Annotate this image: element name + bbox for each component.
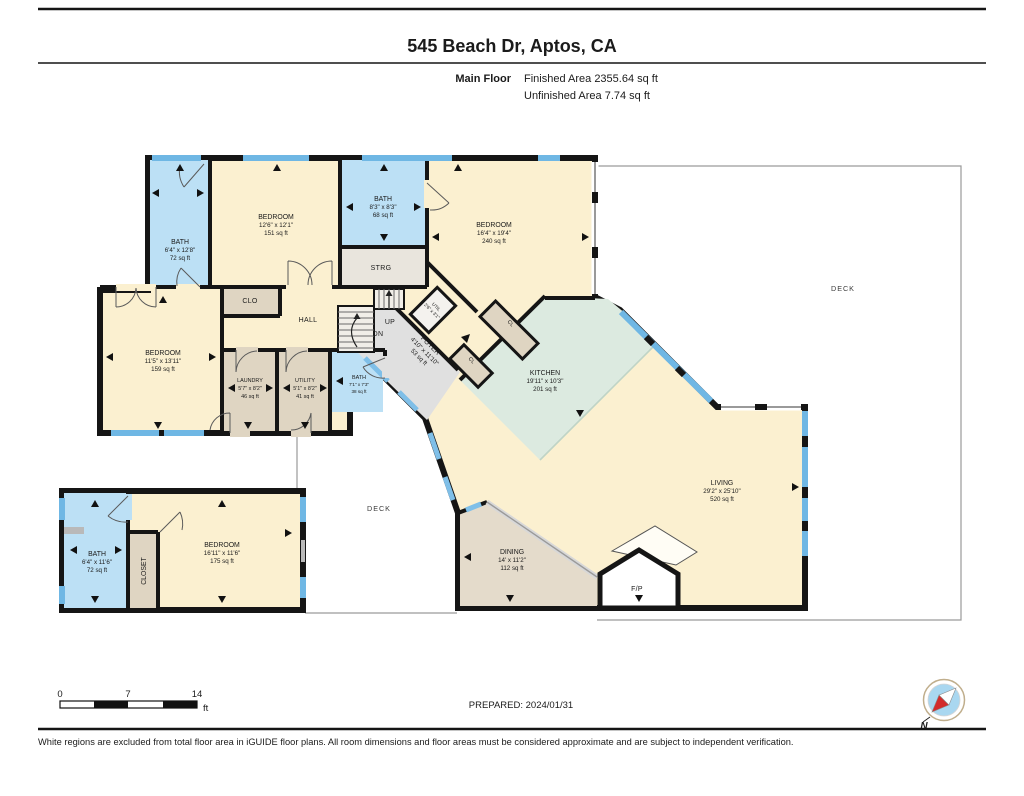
compass-north-label: N (920, 721, 928, 732)
label-living: LIVING (711, 480, 734, 487)
label-bedroom-tl-dims: 12'6" x 12'1" (259, 222, 293, 229)
label-bedroom-tl: BEDROOM (258, 214, 294, 221)
floor-plan-page: 545 Beach Dr, Aptos, CA Main Floor Finis… (0, 0, 1024, 791)
prepared-date: PREPARED: 2024/01/31 (469, 700, 573, 711)
scale-7: 7 (125, 689, 130, 700)
disclaimer-text: White regions are excluded from total fl… (38, 737, 794, 747)
label-kitchen-area: 201 sq ft (533, 386, 557, 393)
scale-unit: ft (203, 703, 209, 714)
label-dining-area: 112 sq ft (500, 565, 524, 572)
label-bath-mid-area: 38 sq ft (351, 389, 367, 394)
label-bedroom-top-dims: 16'4" x 19'4" (477, 230, 511, 237)
label-kitchen: KITCHEN (530, 370, 560, 377)
label-clo: CLO (242, 298, 258, 305)
header: 545 Beach Dr, Aptos, CA Main Floor Finis… (38, 9, 986, 102)
label-bedroom-tl-area: 151 sq ft (264, 230, 288, 237)
label-strg: STRG (371, 265, 392, 272)
label-bedroom-left: BEDROOM (145, 350, 181, 357)
label-utility-dims: 5'1" x 8'2" (293, 386, 317, 392)
footer: White regions are excluded from total fl… (38, 729, 986, 747)
floor-label: Main Floor (455, 73, 511, 85)
label-bedroom-left-dims: 11'5" x 13'11" (145, 358, 181, 365)
label-bath-top-dims: 8'3" x 8'3" (369, 204, 396, 211)
label-utility-area: 41 sq ft (296, 394, 314, 400)
label-bath-ll-dims: 6'4" x 11'6" (82, 559, 112, 566)
floor-plan-canvas: 545 Beach Dr, Aptos, CA Main Floor Finis… (0, 0, 1024, 791)
label-laundry-area: 46 sq ft (241, 394, 259, 400)
label-bath-mid: BATH (352, 375, 366, 381)
label-bedroom-left-area: 159 sq ft (151, 366, 175, 373)
compass-icon: N (920, 680, 964, 733)
label-bedroom-top-area: 240 sq ft (482, 238, 506, 245)
label-hall: HALL (299, 317, 318, 324)
label-bath-ll-area: 72 sq ft (87, 567, 108, 574)
label-bath-tl: BATH (171, 239, 189, 246)
scale-0: 0 (57, 689, 62, 700)
label-bath-tl-area: 72 sq ft (170, 255, 191, 262)
label-bath-top: BATH (374, 196, 392, 203)
page-title: 545 Beach Dr, Aptos, CA (407, 36, 616, 56)
finished-area: Finished Area 2355.64 sq ft (524, 73, 658, 85)
label-bath-tl-dims: 6'4" x 12'8" (165, 247, 196, 254)
label-dn: DN (373, 331, 384, 338)
label-deck-mid: DECK (367, 504, 391, 513)
label-living-area: 520 sq ft (710, 496, 734, 503)
label-closet-ll: CLOSET (141, 556, 148, 584)
label-dining: DINING (500, 549, 524, 556)
label-bath-ll: BATH (88, 551, 106, 558)
unfinished-area: Unfinished Area 7.74 sq ft (524, 90, 650, 102)
label-bedroom-ll: BEDROOM (204, 542, 240, 549)
room-bath-top-left (150, 160, 208, 287)
scale-14: 14 (192, 689, 203, 700)
label-living-dims: 29'2" x 25'10" (703, 488, 740, 495)
label-up: UP (385, 319, 395, 326)
label-bedroom-top: BEDROOM (476, 222, 512, 229)
label-fireplace: F/P (631, 586, 643, 593)
label-laundry-dims: 5'7" x 8'2" (238, 386, 262, 392)
label-bedroom-ll-dims: 16'11" x 11'6" (204, 550, 240, 557)
label-kitchen-dims: 19'11" x 10'3" (527, 378, 564, 385)
label-dining-dims: 14' x 11'2" (498, 557, 526, 564)
label-bedroom-ll-area: 175 sq ft (210, 558, 234, 565)
scale-bar: 0 7 14 ft (57, 689, 208, 714)
label-bath-mid-dims: 7'1" x 7'3" (349, 382, 369, 387)
label-deck-right: DECK (831, 284, 855, 293)
label-bath-top-area: 68 sq ft (373, 212, 394, 219)
label-utility: UTILITY (295, 378, 315, 384)
label-laundry: LAUNDRY (237, 378, 263, 384)
bath-ll-shelf (64, 527, 84, 534)
